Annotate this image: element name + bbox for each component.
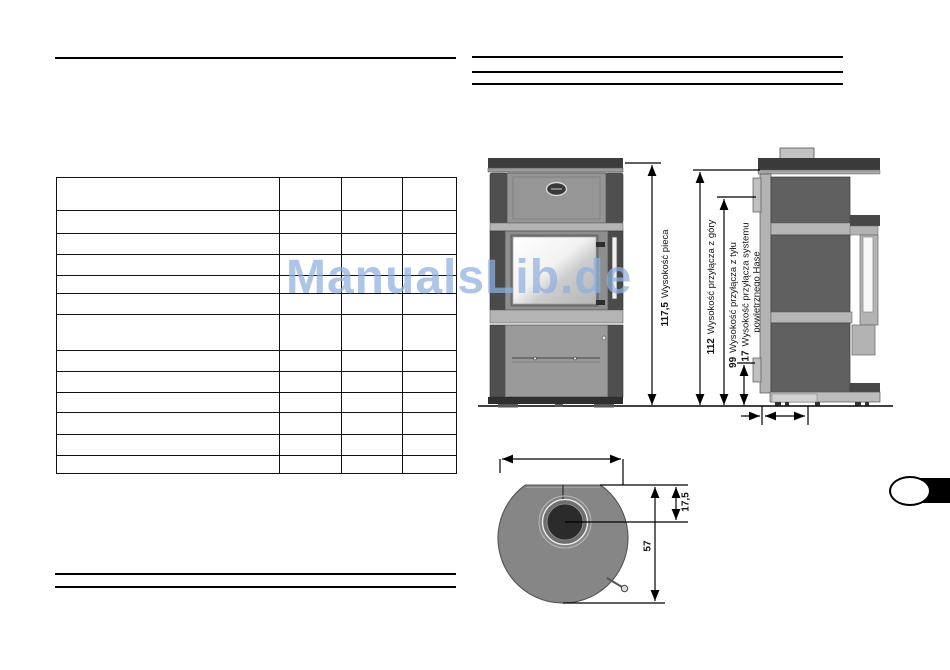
table-cell xyxy=(342,178,403,211)
table-cell xyxy=(57,276,280,294)
table-cell xyxy=(280,178,342,211)
table-row xyxy=(57,351,457,372)
rear-connection-stub xyxy=(753,178,761,212)
table-cell xyxy=(403,413,457,435)
table-row xyxy=(57,178,457,211)
table-cell xyxy=(403,393,457,413)
table-cell xyxy=(280,456,342,474)
table-cell xyxy=(403,315,457,351)
table-cell xyxy=(342,315,403,351)
table-cell xyxy=(280,315,342,351)
table-cell xyxy=(403,178,457,211)
table-cell xyxy=(57,294,280,315)
table-cell xyxy=(280,351,342,372)
table-cell xyxy=(342,393,403,413)
oval-marker xyxy=(889,476,931,506)
table-cell xyxy=(403,435,457,456)
table-row xyxy=(57,456,457,474)
table-cell xyxy=(57,315,280,351)
table-cell xyxy=(342,372,403,393)
air-system-stub xyxy=(753,358,761,382)
table-cell xyxy=(403,351,457,372)
air-knob xyxy=(602,336,606,340)
table-cell xyxy=(57,413,280,435)
table-cell xyxy=(280,211,342,234)
spec-table-body xyxy=(57,178,457,474)
table-cell xyxy=(403,456,457,474)
table-cell xyxy=(57,456,280,474)
table-row xyxy=(57,393,457,413)
header-rule-right-1 xyxy=(472,56,843,58)
stove-technical-drawing xyxy=(460,140,950,650)
table-cell xyxy=(280,393,342,413)
header-rule-right-3 xyxy=(472,83,843,85)
table-cell xyxy=(342,456,403,474)
table-row xyxy=(57,372,457,393)
table-cell xyxy=(280,435,342,456)
table-row xyxy=(57,315,457,351)
table-cell xyxy=(57,393,280,413)
top-view-drawing xyxy=(498,459,688,603)
side-glass-edge xyxy=(863,237,873,312)
table-cell xyxy=(57,234,280,255)
header-rule-left xyxy=(55,57,456,59)
table-cell xyxy=(57,178,280,211)
manual-page: 117,5Wysokość pieca 112Wysokość przyłącz… xyxy=(0,0,950,670)
table-row xyxy=(57,435,457,456)
table-cell xyxy=(57,372,280,393)
table-cell xyxy=(57,255,280,276)
header-rule-right-2 xyxy=(472,71,843,73)
table-cell xyxy=(403,211,457,234)
footer-rule-1 xyxy=(55,573,456,575)
door-hinge-top xyxy=(596,242,605,247)
spec-table xyxy=(56,177,457,474)
table-cell xyxy=(403,372,457,393)
table-cell xyxy=(342,211,403,234)
table-cell xyxy=(57,211,280,234)
footer-rule-2 xyxy=(55,586,456,588)
table-row xyxy=(57,413,457,435)
table-row xyxy=(57,211,457,234)
table-cell xyxy=(342,413,403,435)
table-cell xyxy=(57,351,280,372)
side-view-drawing xyxy=(753,148,880,406)
table-cell xyxy=(280,372,342,393)
table-cell xyxy=(280,413,342,435)
watermark: ManualsLib.de xyxy=(286,254,632,302)
table-cell xyxy=(57,435,280,456)
table-cell xyxy=(342,351,403,372)
table-cell xyxy=(342,435,403,456)
